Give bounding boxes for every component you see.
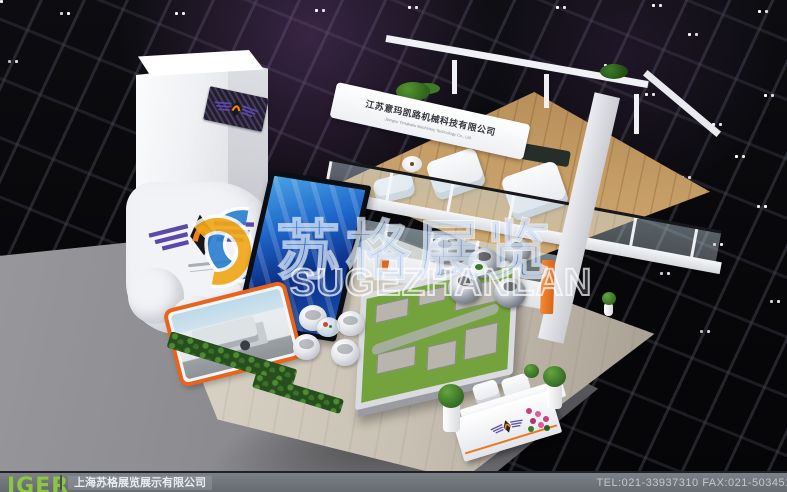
winged-emblem-icon xyxy=(489,414,526,438)
footer-company-name: 上海苏格展览展示有限公司 xyxy=(68,476,212,490)
flower-bouquet-icon xyxy=(526,408,554,436)
footer-divider xyxy=(60,475,62,490)
footer-bar: IGER 上海苏格展览展示有限公司 TEL:021-33937310 FAX:0… xyxy=(0,471,787,492)
winged-emblem-icon xyxy=(211,94,260,123)
model-block xyxy=(464,322,499,361)
topiary-ball-icon xyxy=(438,384,464,408)
white-pod-chair xyxy=(337,311,364,336)
railing-plant-icon xyxy=(600,64,628,79)
model-block xyxy=(426,340,457,372)
topiary-ball-icon xyxy=(543,366,566,387)
white-pod-chair xyxy=(331,339,359,366)
roof-post xyxy=(452,60,457,94)
white-pod-chair xyxy=(293,334,320,360)
white-planter xyxy=(547,384,562,409)
glass-coffee-table xyxy=(316,317,340,337)
exhibition-booth-render: 江苏意玛凯路机械科技有限公司 Jiangsu Yimakailu Machine… xyxy=(0,0,787,492)
watermark-text-en: SUGEZHANLAN xyxy=(290,262,592,305)
roof-post xyxy=(544,74,549,108)
topiary-ball-icon xyxy=(602,292,616,305)
topiary-ball-icon xyxy=(524,364,539,378)
round-side-table xyxy=(402,156,422,172)
spotlight-array-icon xyxy=(0,0,3,3)
roof-post xyxy=(634,94,639,134)
footer-contact-info: TEL:021-33937310 FAX:021-50345150 xyxy=(596,477,787,489)
